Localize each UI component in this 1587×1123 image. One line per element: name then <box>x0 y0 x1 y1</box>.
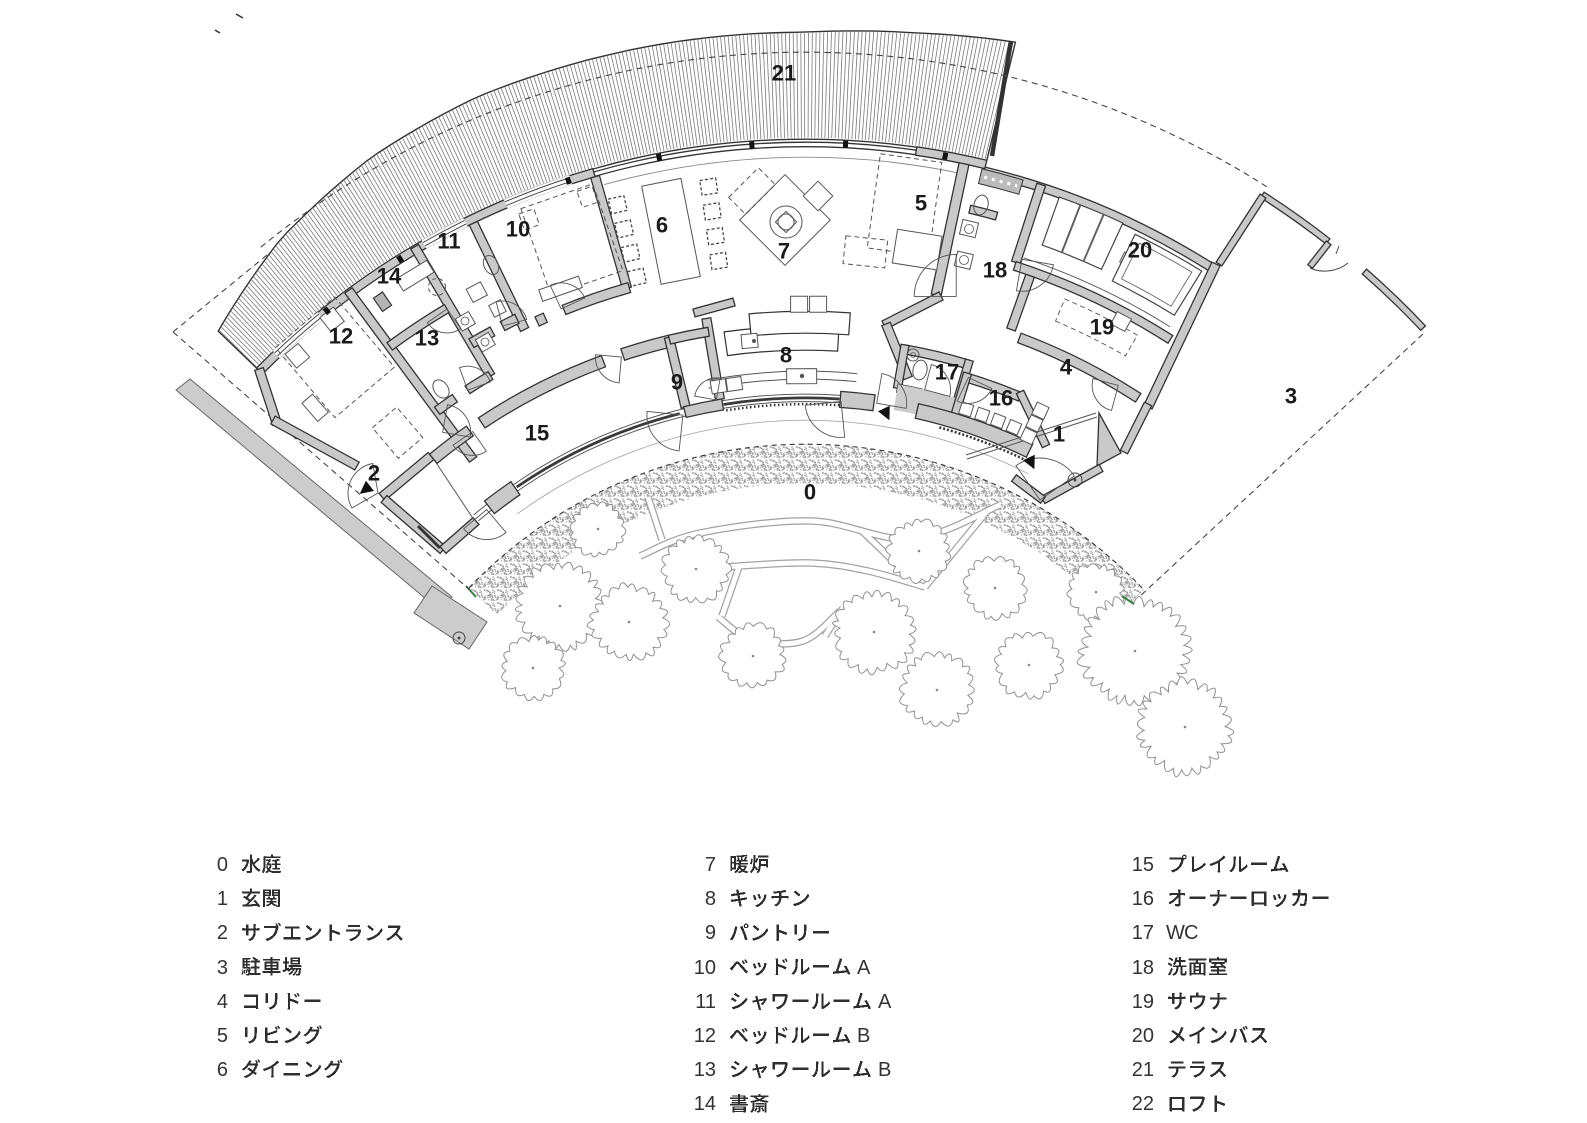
svg-text:14: 14 <box>377 264 402 289</box>
svg-text:2: 2 <box>368 461 380 486</box>
svg-text:20: 20 <box>1132 1025 1154 1047</box>
svg-text:16: 16 <box>989 386 1013 411</box>
svg-text:C: C <box>1184 922 1198 944</box>
svg-text:4: 4 <box>1060 355 1073 380</box>
svg-text:18: 18 <box>1132 957 1154 979</box>
svg-text:13: 13 <box>694 1059 716 1081</box>
svg-text:14: 14 <box>694 1093 716 1115</box>
svg-text:0: 0 <box>217 854 228 876</box>
svg-text:5: 5 <box>217 1025 228 1047</box>
svg-text:8: 8 <box>780 343 792 368</box>
svg-text:21: 21 <box>772 61 796 86</box>
svg-text:15: 15 <box>525 421 549 446</box>
svg-text:B: B <box>878 1059 891 1081</box>
svg-text:19: 19 <box>1132 991 1154 1013</box>
svg-text:3: 3 <box>1285 384 1297 409</box>
svg-text:20: 20 <box>1128 238 1152 263</box>
svg-text:8: 8 <box>705 888 716 910</box>
svg-text:5: 5 <box>915 191 927 216</box>
svg-text:A: A <box>857 957 871 979</box>
svg-text:6: 6 <box>217 1059 228 1081</box>
svg-text:22: 22 <box>1132 1093 1154 1115</box>
svg-text:7: 7 <box>778 239 790 264</box>
svg-text:21: 21 <box>1132 1059 1154 1081</box>
svg-text:9: 9 <box>705 922 716 944</box>
svg-text:10: 10 <box>506 217 530 242</box>
svg-text:A: A <box>878 991 892 1013</box>
svg-text:2: 2 <box>217 922 228 944</box>
svg-text:4: 4 <box>217 991 228 1013</box>
svg-text:7: 7 <box>705 854 716 876</box>
svg-text:1: 1 <box>217 888 228 910</box>
svg-text:W: W <box>1166 922 1185 944</box>
svg-text:16: 16 <box>1132 888 1154 910</box>
svg-text:19: 19 <box>1090 315 1114 340</box>
svg-text:12: 12 <box>694 1025 716 1047</box>
svg-text:17: 17 <box>1132 922 1154 944</box>
svg-text:9: 9 <box>671 370 683 395</box>
svg-text:11: 11 <box>437 229 460 254</box>
svg-text:3: 3 <box>217 957 228 979</box>
svg-text:10: 10 <box>694 957 716 979</box>
svg-text:18: 18 <box>983 258 1007 283</box>
svg-text:B: B <box>857 1025 870 1047</box>
svg-text:17: 17 <box>935 360 959 385</box>
svg-text:6: 6 <box>656 213 668 238</box>
svg-text:1: 1 <box>1053 422 1065 447</box>
svg-text:13: 13 <box>415 326 439 351</box>
svg-text:0: 0 <box>804 480 816 505</box>
svg-text:12: 12 <box>329 324 353 349</box>
svg-text:15: 15 <box>1132 854 1154 876</box>
svg-text:11: 11 <box>695 991 716 1013</box>
